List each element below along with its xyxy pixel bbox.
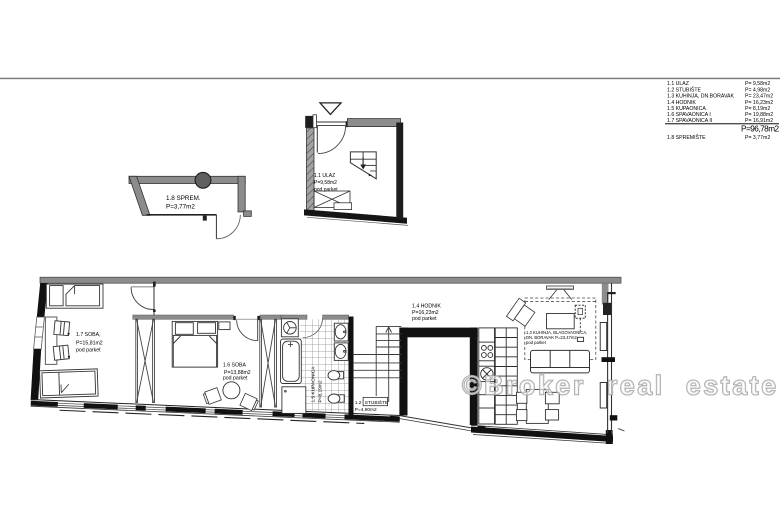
svg-text:1.6 SOBA: 1.6 SOBA (223, 362, 247, 368)
svg-text:P=15,81m2: P=15,81m2 (76, 341, 103, 347)
svg-text:1.1 ULAZ: 1.1 ULAZ (667, 81, 689, 87)
svg-text:pod parket: pod parket (76, 348, 101, 354)
svg-text:P=96,78m2: P=96,78m2 (741, 125, 780, 134)
svg-text:pod parket: pod parket (314, 187, 338, 193)
svg-text:1.8 SPREMIŠTE: 1.8 SPREMIŠTE (667, 134, 706, 141)
svg-text:P= 8,19m2: P= 8,19m2 (745, 106, 770, 112)
svg-text:P= 4,98m2: P= 4,98m2 (745, 87, 770, 93)
svg-text:P=3,77m2: P=3,77m2 (166, 204, 195, 211)
svg-text:1.7 SOBA,: 1.7 SOBA, (76, 332, 101, 338)
svg-text:P=9,58m2: P=9,58m2 (314, 180, 337, 186)
svg-text:1.2 STUBIŠTE: 1.2 STUBIŠTE (667, 86, 702, 93)
svg-text:P= 16,23m2: P= 16,23m2 (745, 100, 773, 106)
svg-text:pod parket: pod parket (526, 340, 547, 345)
svg-text:1.1 ULAZ: 1.1 ULAZ (314, 173, 335, 179)
svg-text:1.5 KUPAONICA: 1.5 KUPAONICA (667, 106, 706, 112)
svg-text:1.5 KUPAONICA: 1.5 KUPAONICA (311, 366, 317, 403)
svg-text:1.8 SPREM.: 1.8 SPREM. (166, 195, 201, 202)
svg-text:pod parket: pod parket (223, 376, 248, 382)
svg-text:1.4 HODNIK: 1.4 HODNIK (667, 100, 696, 106)
svg-text:STUBIŠTE: STUBIŠTE (365, 399, 388, 406)
svg-text:1.4 HODNIK: 1.4 HODNIK (412, 303, 441, 309)
svg-text:P=4,90m2: P=4,90m2 (355, 407, 377, 413)
svg-text:1.2: 1.2 (355, 400, 362, 406)
svg-text:P= 9,58m2: P= 9,58m2 (745, 81, 770, 87)
svg-text:pod parket: pod parket (412, 316, 437, 322)
svg-text:P= 3,77m2: P= 3,77m2 (745, 135, 770, 141)
svg-text:P=8,19m2: P=8,19m2 (318, 380, 324, 402)
svg-text:P= 23,47m2: P= 23,47m2 (745, 94, 773, 100)
svg-text:©Broker real estate: ©Broker real estate (462, 371, 779, 401)
svg-text:1.3 KUHINJA, DN.BORAVAK: 1.3 KUHINJA, DN.BORAVAK (667, 94, 735, 100)
